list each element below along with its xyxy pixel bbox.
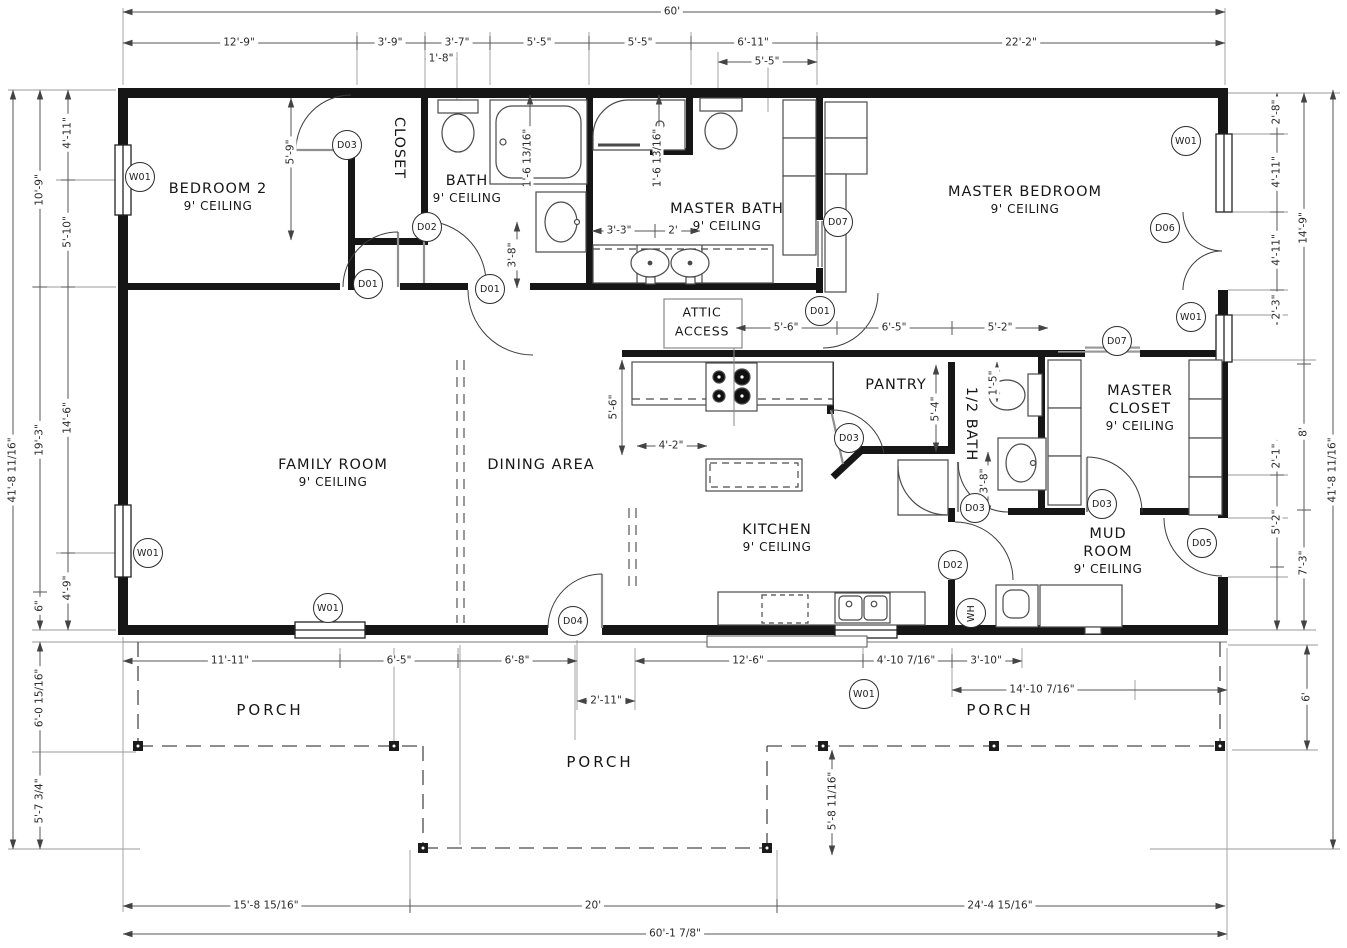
- door-tag: D04: [558, 606, 588, 636]
- window-ledge: [707, 636, 867, 647]
- dimension-label: 5'-5": [524, 37, 555, 48]
- dimension-label: 24'-4 15/16": [964, 900, 1035, 911]
- dimension-label: 1'-5": [988, 368, 999, 399]
- dimension-label: 6'-0 15/16": [34, 666, 45, 730]
- room-label: FAMILY ROOM9' CEILING: [278, 456, 388, 490]
- dimension-label: 12'-6": [729, 655, 767, 666]
- linen-shelves-icon: [783, 100, 816, 255]
- dimension-label: 2'-1": [1271, 441, 1282, 472]
- room-label: MASTER BATH9' CEILING: [670, 200, 784, 234]
- floorplan-canvas: const data = JSON.parse(document.getElem…: [0, 0, 1347, 948]
- porch-label: PORCH: [236, 701, 303, 719]
- door-tag: D01: [475, 274, 505, 304]
- window-tag: W01: [1176, 302, 1206, 332]
- door-tag: D02: [412, 212, 442, 242]
- dimension-label: 4'-11": [1271, 153, 1282, 191]
- window-tag: W01: [1171, 126, 1201, 156]
- dimension-label: 6": [34, 597, 45, 615]
- dimension-label: 1'-6 13/16": [522, 126, 533, 190]
- dimension-label: 8': [1298, 424, 1309, 440]
- window-tag: W01: [313, 593, 343, 623]
- door-tag: D03: [834, 423, 864, 453]
- floorplan-drawing: [0, 0, 1347, 948]
- stove-icon: [706, 363, 757, 411]
- door-tag: D02: [938, 550, 968, 580]
- room-label: MASTERCLOSET9' CEILING: [1106, 382, 1175, 434]
- room-label: CLOSET: [390, 117, 408, 179]
- attic-access-label: ATTICACCESS: [675, 303, 729, 341]
- pantry-corner-wall: [833, 449, 863, 477]
- dimension-label: 5'-4": [930, 394, 941, 425]
- room-label: 1/2 BATH: [962, 387, 980, 461]
- dimension-label: 19'-3": [34, 421, 45, 459]
- water-heater-tag: WH: [956, 598, 986, 628]
- bath-sink-icon: [536, 192, 586, 252]
- room-label: BEDROOM 29' CEILING: [169, 180, 268, 214]
- room-label: BATH9' CEILING: [433, 172, 502, 206]
- room-label: MASTER BEDROOM9' CEILING: [948, 183, 1102, 217]
- door-tag: D03: [960, 493, 990, 523]
- dimension-label: 10'-9": [34, 171, 45, 209]
- dimension-label: 60': [661, 6, 683, 17]
- mudroom-bench-icon: [996, 585, 1122, 634]
- dimension-label: 3'-8": [507, 240, 518, 271]
- dimension-label: 2'-11": [587, 695, 625, 706]
- dimension-label: 5'-8 11/16": [827, 769, 838, 833]
- dimension-label: 1'-8": [426, 53, 457, 64]
- dimension-label: 5'-6": [771, 322, 802, 333]
- door-tag: D03: [332, 130, 362, 160]
- dimension-label: 2'-8": [1271, 97, 1282, 128]
- bathtub-icon: [490, 100, 587, 184]
- dimension-label: 6': [1301, 689, 1312, 705]
- dimension-label: 5'-6": [608, 392, 619, 423]
- room-label: MUDROOM9' CEILING: [1074, 525, 1143, 577]
- dimension-label: 4'-10 7/16": [874, 655, 938, 666]
- dimension-label: 5'-9": [285, 137, 296, 168]
- door-tag: D05: [1187, 528, 1217, 558]
- dimension-label: 6'-8": [502, 655, 533, 666]
- door-tag: D01: [353, 269, 383, 299]
- master-vanity-icon: [593, 245, 773, 284]
- dimension-label: 2'-3": [1271, 292, 1282, 323]
- dimension-label: 5'-10": [62, 213, 73, 251]
- kitchen-island-icon: [706, 459, 802, 491]
- dimension-label: 6'-5": [384, 655, 415, 666]
- dimension-label: 5'-5": [752, 56, 783, 67]
- dimension-label: 4'-2": [656, 440, 687, 451]
- dimension-label: 5'-2": [1271, 507, 1282, 538]
- dimension-label: 3'-8": [979, 466, 990, 497]
- dimension-label: 5'-7 3/4": [34, 775, 45, 826]
- dimension-label: 4'-11": [1271, 231, 1282, 269]
- toilet-icon: [438, 100, 478, 152]
- dimension-label: 1'-6 13/16": [652, 126, 663, 190]
- dimension-label: 11'-11": [208, 655, 252, 666]
- pantry-corner-cabinet-icon: [898, 460, 948, 515]
- dimension-label: 3'-3": [604, 225, 635, 236]
- dimension-label: 3'-10": [967, 655, 1005, 666]
- toilet-icon: [700, 98, 742, 149]
- window-tag: W01: [849, 679, 879, 709]
- dimension-label: 4'-11": [62, 114, 73, 152]
- door-tag: D01: [805, 296, 835, 326]
- dimension-label: 41'-8 11/16": [7, 434, 18, 505]
- bedroom-nook-shelves-icon: [825, 102, 867, 292]
- shower-icon: [593, 100, 685, 150]
- pocket-door-icons: [816, 220, 1140, 353]
- door-tag: D06: [1150, 213, 1180, 243]
- dimension-label: 12'-9": [220, 37, 258, 48]
- dimension-label: 41'-8 11/16": [1327, 434, 1338, 505]
- half-bath-sink-icon: [998, 438, 1046, 490]
- porch-outline: [123, 642, 1227, 853]
- porch-label: PORCH: [966, 701, 1033, 719]
- window-tag: W01: [133, 538, 163, 568]
- room-label: PANTRY: [865, 376, 926, 394]
- dimension-label: 6'-11": [734, 37, 772, 48]
- dimension-label: 7'-3": [1298, 548, 1309, 579]
- dimension-label: 4'-9": [62, 573, 73, 604]
- dimension-label: 5'-2": [985, 322, 1016, 333]
- dimension-label: 60'-1 7/8": [646, 928, 704, 939]
- kitchen-base-counter-icon: [718, 592, 925, 625]
- dimension-label: 3'-9": [375, 37, 406, 48]
- dimension-label: 14'-10 7/16": [1006, 684, 1077, 695]
- dimension-label: 6'-5": [879, 322, 910, 333]
- dimension-label: 15'-8 15/16": [230, 900, 301, 911]
- door-tag: D07: [823, 207, 853, 237]
- porch-posts: [133, 741, 1225, 853]
- room-label: KITCHEN9' CEILING: [742, 521, 812, 555]
- dimension-label: 5'-5": [625, 37, 656, 48]
- dimension-label: 3'-7": [442, 37, 473, 48]
- porch-label: PORCH: [566, 753, 633, 771]
- room-label: DINING AREA: [487, 456, 594, 474]
- window-tag: W01: [125, 162, 155, 192]
- door-tag: D03: [1087, 489, 1117, 519]
- door-tag: D07: [1102, 326, 1132, 356]
- dimension-label: 2': [665, 225, 681, 236]
- dimension-label: 14'-9": [1298, 209, 1309, 247]
- dimension-label: 14'-6": [62, 399, 73, 437]
- dimension-label: 22'-2": [1002, 37, 1040, 48]
- dimension-label: 20': [582, 900, 604, 911]
